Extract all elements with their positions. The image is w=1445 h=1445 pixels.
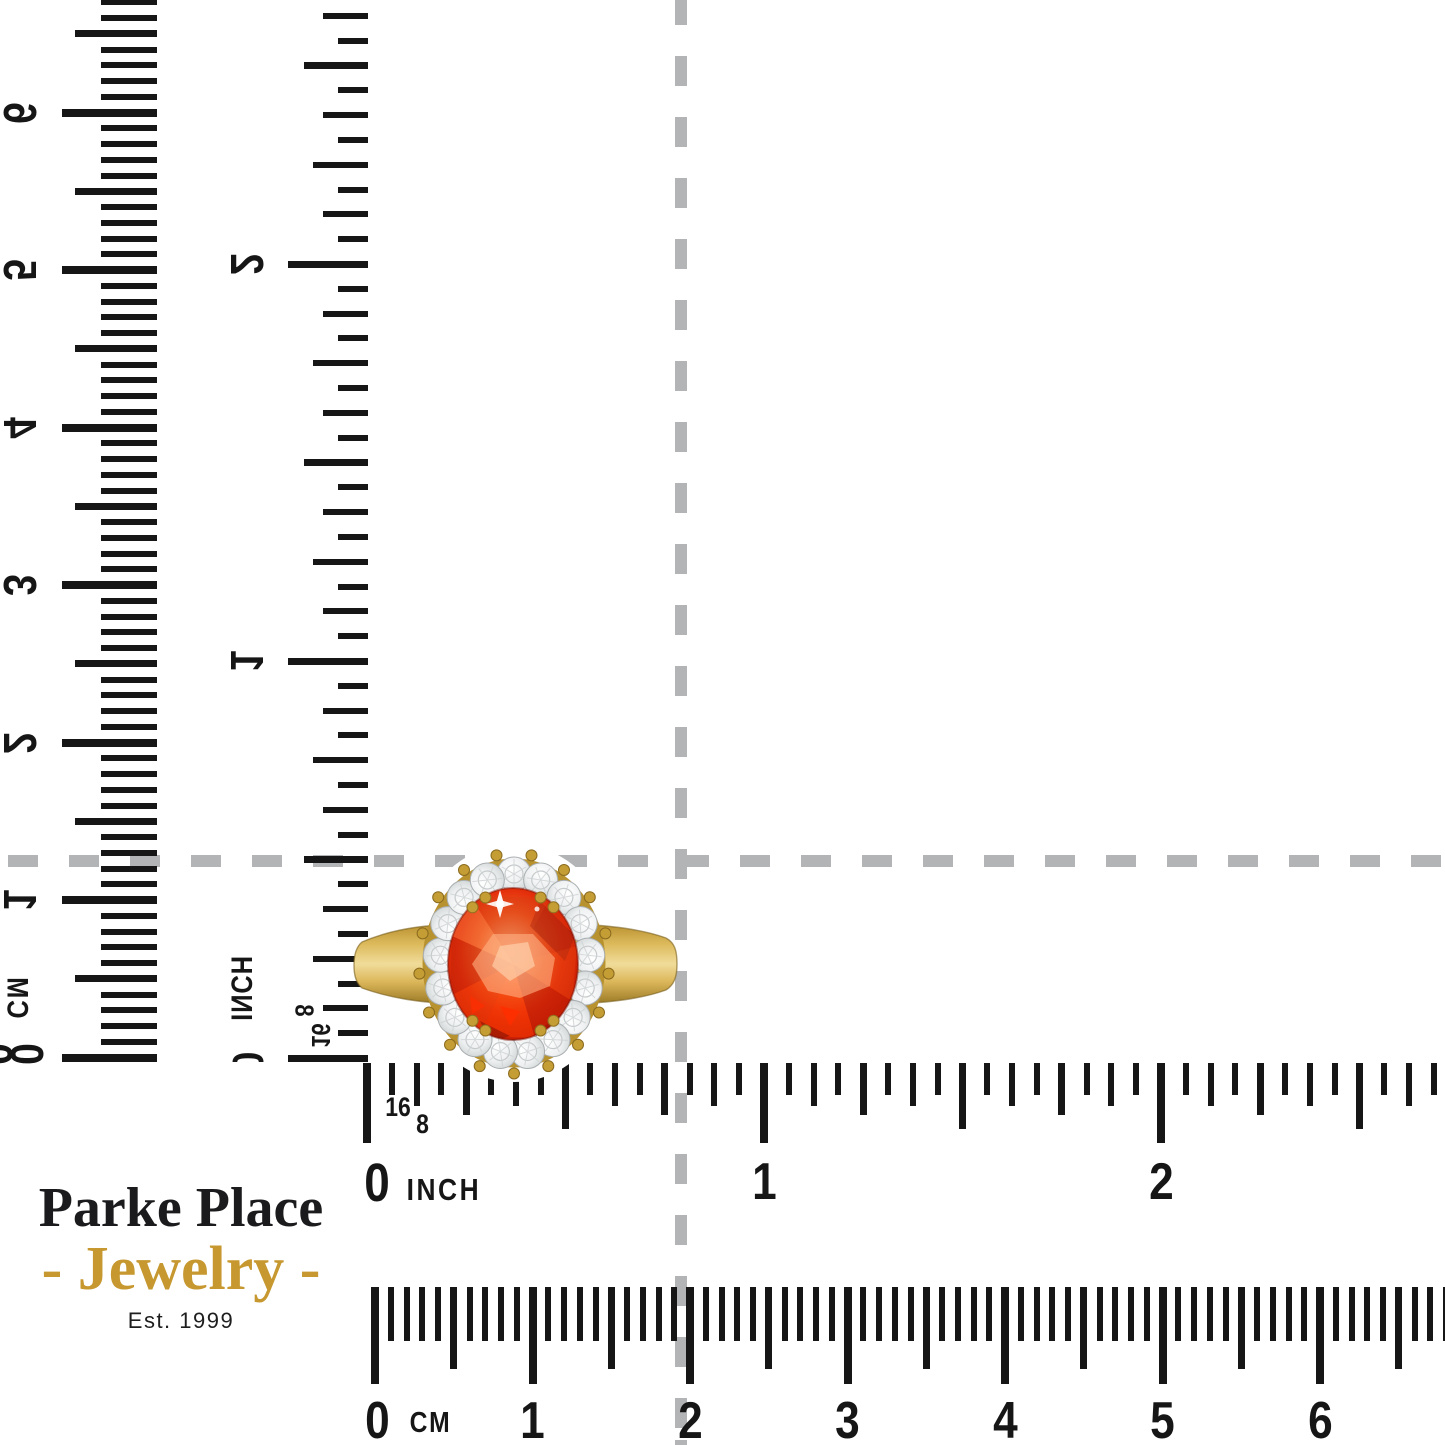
ruler-tick xyxy=(703,1287,709,1341)
ruler-tick xyxy=(1270,1287,1276,1341)
ruler-tick xyxy=(338,534,368,540)
claw-prong xyxy=(548,902,559,913)
ruler-tick xyxy=(1018,1287,1024,1341)
ruler-tick xyxy=(923,1287,930,1369)
ruler-tick xyxy=(955,1287,961,1341)
cm-horizontal-unit-label: CM xyxy=(397,1404,465,1442)
ruler-tick xyxy=(62,424,157,432)
ruler-tick xyxy=(608,1287,615,1369)
ruler-tick xyxy=(514,1287,520,1341)
ruler-tick xyxy=(101,488,157,494)
ruler-tick xyxy=(101,440,157,446)
ruler-tick xyxy=(1133,1063,1139,1095)
gold-prong xyxy=(584,892,595,903)
measurement-stage: CM 0 0 123456 INCH 8 16 0 12 0 INCH 16 8… xyxy=(0,0,1445,1445)
ruler-number-label: 2 xyxy=(217,236,277,292)
ruler-tick xyxy=(404,1287,410,1341)
ruler-tick xyxy=(338,683,368,689)
gold-prong xyxy=(459,865,470,876)
gold-prong xyxy=(526,850,537,861)
ruler-tick xyxy=(1412,1287,1418,1341)
ruler-tick xyxy=(529,1287,537,1384)
ruler-tick xyxy=(101,330,157,336)
ruler-tick xyxy=(75,660,157,667)
ruler-tick xyxy=(338,38,368,44)
ruler-tick xyxy=(1034,1287,1040,1341)
ruler-tick xyxy=(101,519,157,525)
ruler-tick xyxy=(892,1287,898,1341)
ruler-tick xyxy=(101,0,157,5)
ruler-tick xyxy=(876,1287,882,1341)
ruler-tick xyxy=(450,1287,457,1369)
ruler-tick xyxy=(388,1287,394,1341)
ruler-tick xyxy=(984,1063,990,1095)
ruler-tick xyxy=(1058,1063,1065,1115)
ruler-tick xyxy=(323,708,368,714)
ruler-tick xyxy=(62,581,157,589)
ruler-tick xyxy=(1208,1063,1214,1106)
ruler-tick xyxy=(101,299,157,305)
crosshair-vertical-line xyxy=(675,0,687,1445)
ruler-tick xyxy=(671,1287,677,1341)
ruler-number-label: 6 xyxy=(0,85,50,141)
ruler-tick xyxy=(101,173,157,179)
ruler-tick xyxy=(62,1054,157,1062)
ruler-tick xyxy=(1183,1063,1189,1095)
ruler-tick xyxy=(719,1287,725,1341)
ruler-tick xyxy=(1364,1287,1370,1341)
ruler-tick xyxy=(101,614,157,620)
ruler-tick xyxy=(482,1287,488,1341)
gold-prong xyxy=(573,1039,584,1050)
ruler-tick xyxy=(686,1287,694,1384)
claw-prong xyxy=(467,1015,478,1026)
ruler-tick xyxy=(313,559,368,565)
ruler-tick xyxy=(1232,1063,1238,1095)
ruler-tick xyxy=(908,1287,914,1341)
ruler-tick xyxy=(435,1287,441,1341)
gold-prong xyxy=(414,968,425,979)
ruler-tick xyxy=(101,456,157,462)
ruler-tick xyxy=(101,708,157,714)
ruler-tick xyxy=(101,850,157,856)
ruler-tick xyxy=(101,314,157,320)
cm-horizontal-zero-label: 0 xyxy=(352,1394,402,1445)
ruler-tick xyxy=(62,266,157,274)
ruler-tick xyxy=(1065,1287,1071,1341)
ruler-tick xyxy=(786,1063,792,1095)
ruler-tick xyxy=(338,732,368,738)
ruler-tick xyxy=(1349,1287,1355,1341)
ruler-tick xyxy=(101,362,157,368)
ruler-tick xyxy=(624,1287,630,1341)
ruler-tick xyxy=(1157,1063,1165,1143)
ruler-tick xyxy=(101,283,157,289)
ruler-tick xyxy=(939,1287,945,1341)
ruler-tick xyxy=(910,1063,916,1106)
ruler-tick xyxy=(338,87,368,93)
ruler-tick xyxy=(860,1063,867,1115)
ruler-tick xyxy=(1144,1287,1150,1341)
ruler-tick xyxy=(75,345,157,352)
ruler-tick xyxy=(760,1063,768,1143)
ruler-tick xyxy=(323,13,368,19)
ruler-tick xyxy=(323,807,368,813)
ruler-tick xyxy=(561,1287,567,1341)
ruler-tick xyxy=(1356,1063,1363,1129)
ruler-tick xyxy=(75,818,157,825)
ruler-number-label: 4 xyxy=(0,400,50,456)
ruler-number-label: 5 xyxy=(0,242,50,298)
ruler-tick xyxy=(101,866,157,872)
ruler-tick xyxy=(545,1287,551,1341)
ruler-tick xyxy=(101,771,157,777)
ruler-tick xyxy=(101,15,157,21)
ruler-tick xyxy=(75,188,157,195)
inch-horizontal-unit-label: INCH xyxy=(396,1172,492,1208)
ruler-number-label: 3 xyxy=(0,557,50,613)
ruler-number-label: 2 xyxy=(664,1394,716,1445)
ruler-tick xyxy=(338,286,368,292)
ruler-tick xyxy=(1286,1287,1292,1341)
ruler-tick xyxy=(829,1287,835,1341)
gold-prong xyxy=(543,1061,554,1072)
gold-prong xyxy=(594,1007,605,1018)
ruler-tick xyxy=(101,551,157,557)
ruler-tick xyxy=(101,803,157,809)
ruler-tick xyxy=(338,584,368,590)
ruler-tick xyxy=(304,459,368,466)
claw-prong xyxy=(480,1025,491,1036)
ring-photo xyxy=(348,843,682,1085)
ruler-tick xyxy=(101,47,157,53)
ruler-tick xyxy=(935,1063,941,1095)
ruler-tick xyxy=(338,484,368,490)
cm-vertical-unit-label: CM xyxy=(0,965,46,1029)
gold-prong xyxy=(417,928,428,939)
ruler-tick xyxy=(101,677,157,683)
ruler-tick xyxy=(101,960,157,966)
ruler-tick xyxy=(1307,1063,1313,1106)
ruler-tick xyxy=(811,1063,817,1106)
ruler-tick xyxy=(101,251,157,257)
ruler-tick xyxy=(101,1007,157,1013)
ruler-tick xyxy=(101,409,157,415)
ruler-tick xyxy=(1395,1287,1402,1369)
ruler-tick xyxy=(313,360,368,366)
ruler-tick xyxy=(75,503,157,510)
ruler-tick xyxy=(101,1023,157,1029)
ruler-tick xyxy=(101,78,157,84)
inch-horizontal-zero-label: 0 xyxy=(352,1156,402,1210)
gold-prong xyxy=(509,1068,520,1079)
gold-prong xyxy=(491,850,502,861)
ruler-tick xyxy=(750,1287,756,1341)
ruler-tick xyxy=(101,393,157,399)
ruler-tick xyxy=(338,236,368,242)
gold-prong xyxy=(424,1007,435,1018)
ruler-number-label: 1 xyxy=(507,1394,559,1445)
ruler-tick xyxy=(338,633,368,639)
ruler-number-label: 2 xyxy=(1135,1155,1187,1209)
ruler-tick xyxy=(1381,1063,1387,1095)
ruler-tick xyxy=(734,1287,740,1341)
ruler-tick xyxy=(1191,1287,1197,1341)
brand-logo: Parke Place - Jewelry - Est. 1999 xyxy=(16,1180,346,1334)
ruler-tick xyxy=(101,157,157,163)
ruler-tick xyxy=(1257,1063,1264,1115)
ruler-number-label: 1 xyxy=(0,872,50,928)
ruler-tick xyxy=(1108,1063,1114,1106)
inch-vertical-sixteenth-label: 16 xyxy=(298,1017,342,1053)
ruler-tick xyxy=(338,832,368,838)
inch-vertical-unit-label: INCH xyxy=(211,931,271,1045)
claw-prong xyxy=(548,1015,559,1026)
ruler-tick xyxy=(288,658,368,665)
ruler-tick xyxy=(101,692,157,698)
ruler-tick xyxy=(338,137,368,143)
ruler-tick xyxy=(62,896,157,904)
ruler-tick xyxy=(101,834,157,840)
ruler-tick xyxy=(101,566,157,572)
ruler-tick xyxy=(101,94,157,100)
ruler-tick xyxy=(371,1287,379,1384)
ruler-tick xyxy=(101,62,157,68)
ruler-tick xyxy=(101,472,157,478)
ruler-tick xyxy=(1282,1063,1288,1095)
crosshair-horizontal-line xyxy=(0,855,1445,867)
ruler-tick xyxy=(75,975,157,982)
ruler-tick xyxy=(313,162,368,168)
ruler-tick xyxy=(835,1063,841,1095)
ruler-tick xyxy=(323,211,368,217)
ruler-tick xyxy=(1097,1287,1103,1341)
ruler-tick xyxy=(1238,1287,1245,1369)
ruler-tick xyxy=(75,30,157,37)
ruler-tick xyxy=(593,1287,599,1341)
ruler-tick xyxy=(1427,1287,1433,1341)
ruler-tick xyxy=(101,535,157,541)
ruler-tick xyxy=(101,598,157,604)
ruler-tick xyxy=(844,1287,852,1384)
ruler-tick xyxy=(323,112,368,118)
ruler-tick xyxy=(101,1039,157,1045)
ruler-tick xyxy=(656,1287,662,1341)
ruler-tick xyxy=(1316,1287,1324,1384)
ruler-tick xyxy=(101,787,157,793)
ruler-tick xyxy=(101,125,157,131)
ruler-tick xyxy=(323,608,368,614)
ruler-tick xyxy=(1001,1287,1009,1384)
ruler-number-label: 6 xyxy=(1294,1394,1346,1445)
ruler-number-label: 2 xyxy=(0,715,50,771)
ruler-tick xyxy=(101,377,157,383)
ruler-tick xyxy=(765,1287,772,1369)
ruler-tick xyxy=(101,629,157,635)
brand-tagline: - Jewelry - xyxy=(16,1238,346,1300)
ruler-tick xyxy=(782,1287,788,1341)
gold-prong xyxy=(474,1061,485,1072)
ruler-tick xyxy=(323,509,368,515)
ruler-tick xyxy=(101,236,157,242)
ruler-tick xyxy=(1009,1063,1015,1106)
ruler-tick xyxy=(1254,1287,1260,1341)
ruler-tick xyxy=(986,1287,992,1341)
ruler-tick xyxy=(736,1063,742,1095)
gold-prong xyxy=(559,865,570,876)
ruler-tick xyxy=(304,62,368,69)
ruler-tick xyxy=(467,1287,473,1341)
cm-vertical-zero-clipped-label: 0 xyxy=(0,1030,26,1078)
ruler-tick xyxy=(101,755,157,761)
ruler-number-label: 1 xyxy=(217,633,277,689)
brand-established: Est. 1999 xyxy=(16,1308,346,1334)
ruler-tick xyxy=(62,739,157,747)
ruler-tick xyxy=(338,385,368,391)
ruler-tick xyxy=(313,757,368,763)
ruler-tick xyxy=(1112,1287,1118,1341)
ruler-tick xyxy=(813,1287,819,1341)
ruler-tick xyxy=(1175,1287,1181,1341)
claw-prong xyxy=(535,1025,546,1036)
ruler-tick xyxy=(338,335,368,341)
ruler-tick xyxy=(101,944,157,950)
ruler-tick xyxy=(323,311,368,317)
ruler-tick xyxy=(62,109,157,117)
ruler-tick xyxy=(971,1287,977,1341)
gold-prong xyxy=(445,1039,456,1050)
ruler-tick xyxy=(338,187,368,193)
gold-prong xyxy=(600,928,611,939)
ruler-tick xyxy=(1332,1063,1338,1095)
ruler-tick xyxy=(338,782,368,788)
gold-prong xyxy=(603,968,614,979)
ruler-tick xyxy=(860,1287,866,1341)
ruler-tick xyxy=(1431,1063,1437,1095)
ruler-tick xyxy=(101,992,157,998)
ruler-tick xyxy=(577,1287,583,1341)
ruler-number-label: 5 xyxy=(1137,1394,1189,1445)
ruler-tick xyxy=(1084,1063,1090,1095)
ruler-tick xyxy=(1406,1063,1412,1106)
ruler-tick xyxy=(1034,1063,1040,1095)
ruler-tick xyxy=(101,929,157,935)
ruler-tick xyxy=(711,1063,717,1106)
ruler-number-label: 1 xyxy=(738,1155,790,1209)
ruler-tick xyxy=(959,1063,966,1129)
ruler-tick xyxy=(101,913,157,919)
ruler-tick xyxy=(101,724,157,730)
brand-name: Parke Place xyxy=(16,1180,346,1236)
ruler-tick xyxy=(419,1287,425,1341)
ruler-tick xyxy=(101,204,157,210)
ruler-tick xyxy=(797,1287,803,1341)
ruler-tick xyxy=(885,1063,891,1095)
ruler-tick xyxy=(288,261,368,268)
inch-horizontal-eighth-label: 8 xyxy=(404,1109,442,1139)
ruler-number-label: 3 xyxy=(822,1394,874,1445)
claw-prong xyxy=(480,892,491,903)
gold-prong xyxy=(433,892,444,903)
ruler-tick xyxy=(338,435,368,441)
ruler-tick xyxy=(1128,1287,1134,1341)
claw-prong xyxy=(467,902,478,913)
ruler-tick xyxy=(101,645,157,651)
ruler-tick xyxy=(498,1287,504,1341)
ruler-tick xyxy=(1301,1287,1307,1341)
ruler-tick xyxy=(1049,1287,1055,1341)
ruler-tick xyxy=(1223,1287,1229,1341)
ruler-tick xyxy=(1333,1287,1339,1341)
ruler-tick xyxy=(101,220,157,226)
ruler-tick xyxy=(101,881,157,887)
ruler-tick xyxy=(1159,1287,1167,1384)
ruler-number-label: 4 xyxy=(979,1394,1031,1445)
ruler-tick xyxy=(101,141,157,147)
inch-vertical-zero-clipped-label: 0 xyxy=(223,1048,271,1062)
ruler-tick xyxy=(640,1287,646,1341)
ruler-tick xyxy=(687,1063,693,1095)
ruler-tick xyxy=(1207,1287,1213,1341)
ruler-tick xyxy=(323,410,368,416)
ruler-tick xyxy=(1080,1287,1087,1369)
ruler-tick xyxy=(1380,1287,1386,1341)
claw-prong xyxy=(535,892,546,903)
